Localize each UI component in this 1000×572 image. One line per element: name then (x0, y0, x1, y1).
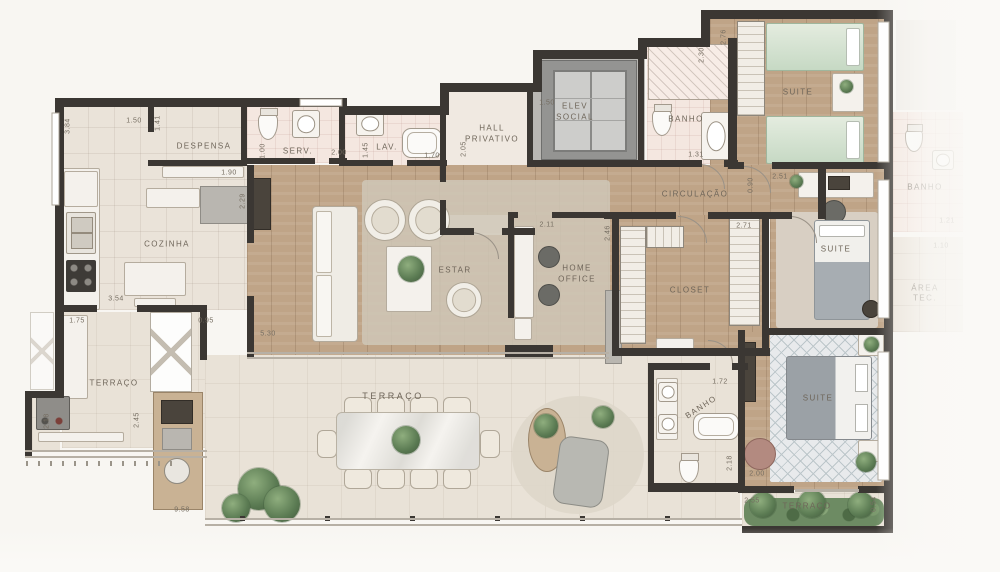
dim-label: 9.58 (174, 507, 190, 514)
room-label-terraco-br: TERRAÇO (783, 502, 832, 511)
dim-label: 1.70 (424, 153, 440, 160)
dim-label: 3.84 (65, 118, 72, 134)
dim-label: 1.31 (688, 152, 704, 159)
room-label-home-2: OFFICE (558, 275, 596, 284)
dim-label: 1.50 (539, 100, 555, 107)
room-label-suite-bottom: SUITE (803, 394, 834, 403)
dim-label: 1.00 (260, 143, 267, 159)
room-label-elev-1: ELEV (562, 102, 588, 111)
walls-layer (0, 0, 1000, 572)
dim-label: 0.54 (871, 496, 878, 512)
room-label-closet: CLOSET (670, 286, 710, 295)
dim-label: 1.72 (712, 379, 728, 386)
room-label-elev-2: SOCIAL (556, 113, 594, 122)
dim-label: 2.55 (744, 498, 760, 505)
dim-label: 1.50 (126, 118, 142, 125)
room-label-hall-1: HALL (479, 124, 505, 133)
dim-label: 0.95 (198, 318, 214, 325)
room-label-banho-right: BANHO (907, 183, 942, 192)
dim-label: 2.51 (772, 174, 788, 181)
room-label-areatec-1: ÁREA (911, 284, 938, 293)
dim-label: 2.71 (736, 223, 752, 230)
dim-label: 2.18 (44, 413, 51, 429)
room-label-banho-top: BANHO (668, 115, 703, 124)
room-label-serv: SERV. (283, 147, 313, 156)
floor-plan: DESPENSA SERV. LAV. HALL PRIVATIVO ELEV … (0, 0, 1000, 572)
room-label-terraco-left: TERRAÇO (90, 379, 139, 388)
dim-label: 1.75 (69, 318, 85, 325)
dim-label: 2.76 (721, 29, 728, 45)
dim-label: 2.05 (461, 141, 468, 157)
room-label-home-1: HOME (562, 264, 592, 273)
dim-label: 1.10 (933, 243, 949, 250)
dim-label: 1.90 (221, 170, 237, 177)
dim-label: 2.18 (727, 455, 734, 471)
dim-label: 2.30 (699, 47, 706, 63)
dim-label: 2.46 (605, 225, 612, 241)
dim-label: 2.29 (240, 193, 247, 209)
dim-label: 1.21 (939, 218, 955, 225)
room-label-hall-2: PRIVATIVO (465, 135, 519, 144)
room-label-estar: ESTAR (438, 266, 471, 275)
room-label-despensa: DESPENSA (177, 142, 232, 151)
dim-label: 1.45 (363, 142, 370, 158)
dim-label: 2.11 (539, 222, 554, 229)
room-label-cozinha: COZINHA (144, 240, 190, 249)
room-label-areatec-2: TEC. (913, 294, 937, 303)
room-label-suite-mid: SUITE (821, 245, 852, 254)
dim-label: 2.45 (134, 412, 141, 428)
room-label-suite-top: SUITE (783, 88, 814, 97)
room-label-circulacao: CIRCULAÇÃO (662, 190, 728, 199)
dim-label: 0.90 (748, 177, 755, 193)
dim-label: 5.30 (260, 331, 276, 338)
dim-label: 1.41 (155, 115, 162, 131)
dim-label: 2.00 (331, 150, 347, 157)
dim-label: 2.00 (749, 471, 765, 478)
room-label-lav: LAV. (376, 143, 398, 152)
dim-label: 3.54 (108, 296, 124, 303)
room-label-terraco-main: TERRAÇO (362, 391, 424, 401)
